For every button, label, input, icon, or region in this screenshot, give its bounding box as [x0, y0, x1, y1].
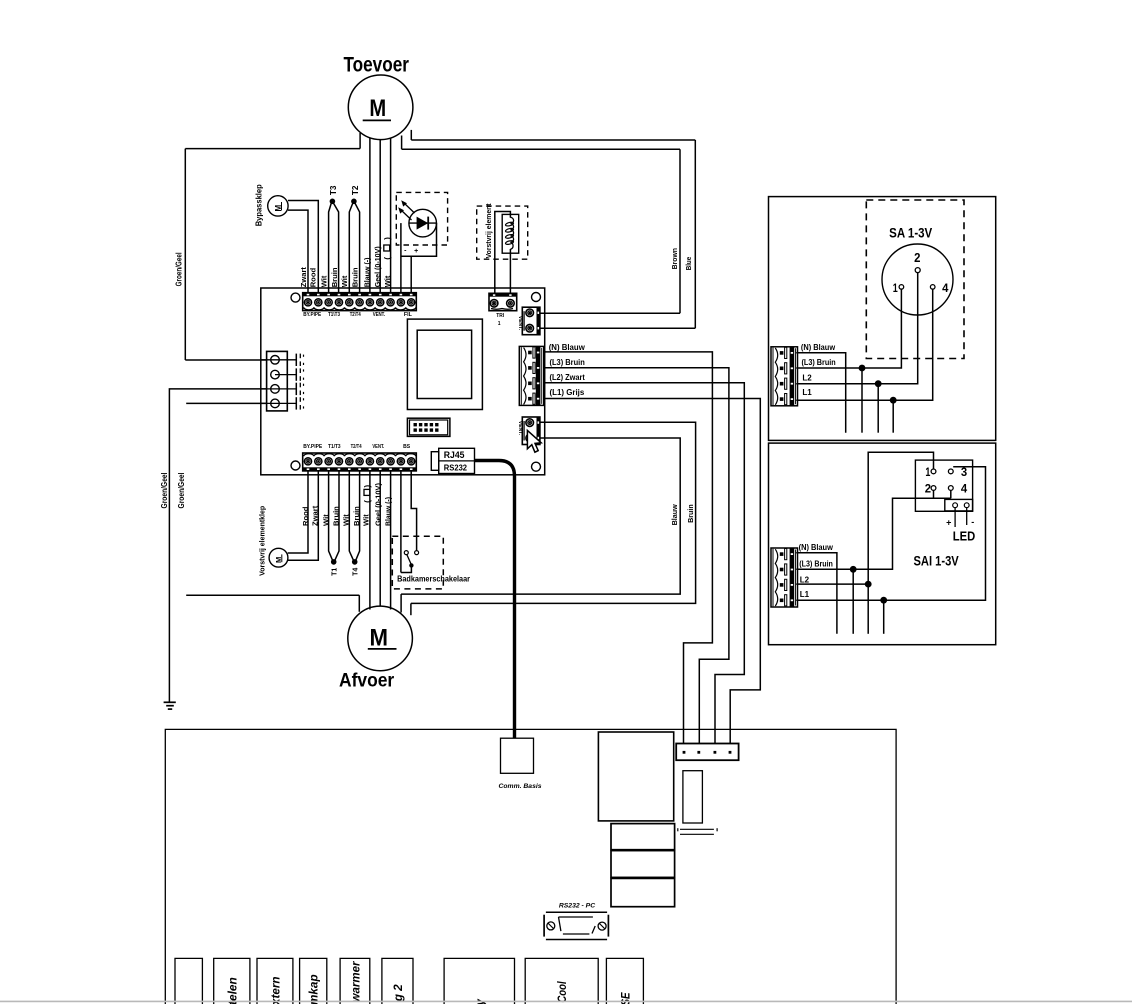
svg-text:(L3) Bruin: (L3) Bruin: [802, 358, 836, 367]
svg-text:Bruin: Bruin: [686, 504, 695, 523]
svg-text:T3: T3: [329, 185, 338, 195]
svg-text:T2/T4: T2/T4: [351, 444, 362, 450]
svg-text:2: 2: [914, 250, 920, 265]
svg-text:Bypassklep: Bypassklep: [255, 184, 264, 226]
svg-text:M: M: [369, 624, 388, 651]
svg-text:BS: BS: [403, 444, 411, 450]
svg-text:Toevoer: Toevoer: [343, 54, 409, 77]
svg-text:T1/T3: T1/T3: [328, 444, 341, 450]
svg-text:4: 4: [961, 481, 968, 495]
svg-text:g 2: g 2: [393, 984, 405, 1003]
svg-text:1: 1: [925, 465, 930, 479]
svg-text:Groen/Geel: Groen/Geel: [174, 252, 183, 286]
svg-text:M: M: [369, 95, 386, 122]
svg-text:Rood: Rood: [309, 268, 318, 288]
svg-text:2: 2: [925, 481, 932, 495]
svg-text:RJ45: RJ45: [444, 450, 465, 460]
svg-text:xtern: xtern: [270, 977, 282, 1004]
svg-text:(L3) Bruin: (L3) Bruin: [799, 559, 833, 568]
svg-text:RS232 - PC: RS232 - PC: [559, 902, 595, 909]
svg-text:BY.PIPE: BY.PIPE: [303, 312, 322, 318]
svg-text:(N) Blauw: (N) Blauw: [549, 342, 585, 352]
svg-text:Zwart: Zwart: [299, 267, 308, 288]
svg-text:(: (: [382, 257, 392, 260]
svg-text:(N) Blauw: (N) Blauw: [801, 343, 836, 352]
svg-text:RS232: RS232: [444, 463, 468, 472]
svg-text:L1: L1: [800, 590, 810, 599]
svg-text:VENT.: VENT.: [372, 444, 384, 450]
svg-text:Badkamerschakelaar: Badkamerschakelaar: [397, 575, 470, 584]
svg-text:T1: T1: [330, 568, 339, 576]
svg-text:Wit: Wit: [319, 275, 328, 287]
svg-text:Comm. Basis: Comm. Basis: [498, 783, 541, 790]
svg-text:Groen/Geel: Groen/Geel: [177, 473, 186, 509]
svg-text:BY.PIPE: BY.PIPE: [303, 444, 323, 450]
svg-text:mkap: mkap: [309, 974, 321, 1004]
svg-text:(L1) Grijs: (L1) Grijs: [550, 387, 585, 397]
svg-text:Blauw (-): Blauw (-): [363, 257, 372, 287]
svg-text:L2: L2: [802, 374, 812, 383]
svg-text:4: 4: [942, 281, 949, 295]
svg-text:(N) Blauw: (N) Blauw: [799, 543, 834, 552]
svg-text:VENT.: VENT.: [373, 312, 386, 318]
svg-text:VENT.: VENT.: [517, 421, 523, 436]
svg-text:1: 1: [498, 321, 501, 327]
svg-text:Bruin: Bruin: [330, 267, 339, 287]
svg-text:Blue: Blue: [684, 257, 693, 271]
svg-text:T2\T4: T2\T4: [350, 312, 361, 318]
svg-text:SE: SE: [620, 992, 632, 1004]
svg-text:Groen/Geel: Groen/Geel: [160, 473, 169, 509]
svg-text:SA 1-3V: SA 1-3V: [889, 224, 933, 240]
svg-text:(L2) Zwart: (L2) Zwart: [550, 372, 585, 382]
svg-text:SAI 1-3V: SAI 1-3V: [913, 553, 959, 568]
svg-text:Vorstvrij element: Vorstvrij element: [484, 203, 493, 258]
svg-text:telen: telen: [227, 977, 239, 1004]
svg-text:warmer: warmer: [350, 961, 362, 1003]
svg-text:FIL: FIL: [404, 312, 412, 318]
svg-text:1: 1: [893, 281, 898, 295]
svg-text:Brown: Brown: [670, 248, 679, 270]
svg-text:Blauw: Blauw: [670, 504, 679, 525]
svg-text:Vorstvrij elementklep: Vorstvrij elementklep: [258, 506, 267, 576]
svg-text:-: -: [971, 517, 974, 527]
svg-text:Bruin: Bruin: [350, 267, 359, 287]
svg-text:+: +: [414, 248, 418, 255]
svg-text:Wit: Wit: [340, 275, 349, 287]
svg-text:TRI: TRI: [496, 313, 504, 319]
svg-text:VENT.: VENT.: [517, 316, 523, 331]
svg-text:T2: T2: [351, 185, 360, 195]
svg-text:T1\T3: T1\T3: [328, 312, 340, 318]
svg-text:T4: T4: [351, 568, 360, 576]
svg-text:Wit: Wit: [383, 275, 392, 287]
svg-text:+: +: [946, 517, 951, 527]
svg-text:Afvoer: Afvoer: [339, 671, 395, 692]
svg-text:Geel (0-10V): Geel (0-10V): [373, 246, 382, 287]
svg-text:LED: LED: [953, 529, 976, 544]
svg-text:): ): [382, 237, 392, 240]
svg-text:L1: L1: [802, 388, 812, 397]
svg-text:(L3) Bruin: (L3) Bruin: [550, 357, 585, 367]
svg-text:Cool: Cool: [557, 981, 569, 1003]
